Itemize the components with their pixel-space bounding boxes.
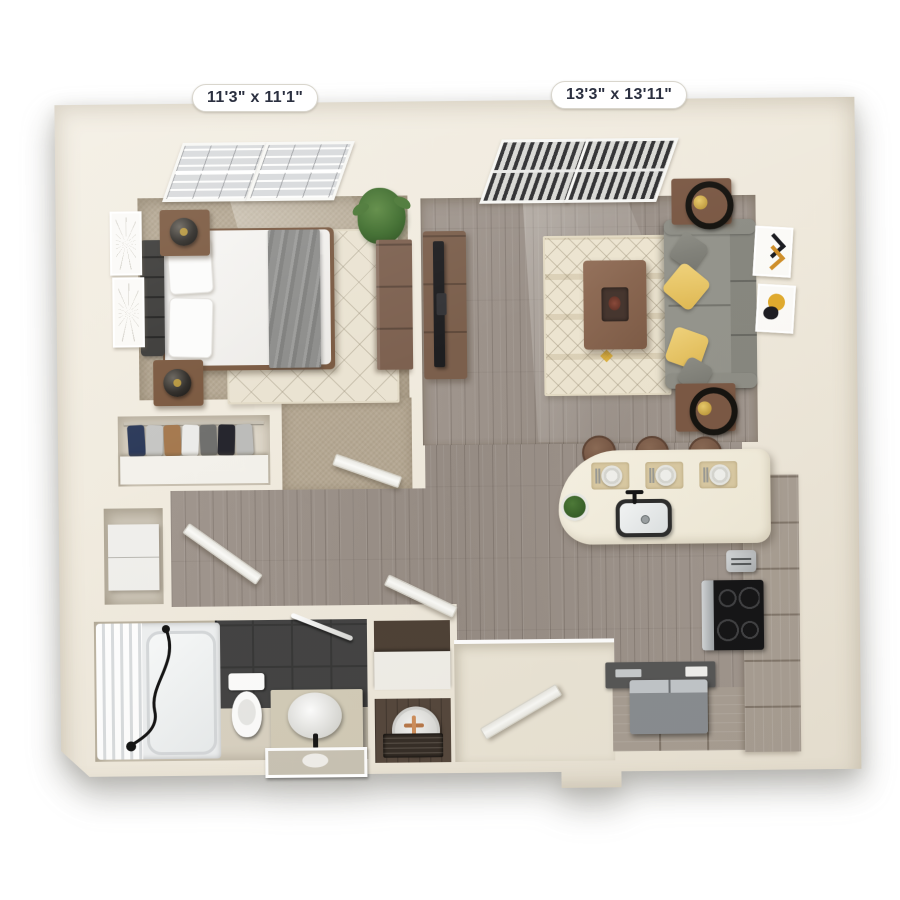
ring-lamp	[685, 181, 734, 230]
sofa-seat-seam	[669, 304, 731, 307]
bathroom-vanity	[271, 689, 364, 751]
kitchen-faucet	[632, 490, 636, 504]
place-setting	[645, 462, 683, 489]
hanging-garment	[181, 424, 199, 456]
utility-closet-cabinet	[108, 524, 160, 591]
toilet	[228, 673, 265, 739]
stove-burners	[715, 584, 760, 646]
sofa-back-cushions	[730, 219, 758, 388]
art-line-drawing	[118, 283, 139, 341]
bedroom-wall-art	[112, 277, 145, 347]
bedroom-dresser	[376, 239, 413, 369]
table-lamp	[170, 218, 198, 246]
toilet-tank	[228, 673, 264, 690]
living-room-wall-art	[753, 226, 794, 278]
toaster	[726, 550, 756, 572]
hanging-garment	[146, 425, 164, 456]
ring-lamp	[689, 387, 738, 436]
hanging-garment	[199, 424, 217, 456]
sink-drain	[641, 515, 650, 524]
bathtub	[96, 623, 221, 760]
hanging-garment	[163, 425, 181, 457]
end-table	[675, 383, 735, 432]
stove-control-panel	[701, 580, 714, 650]
nightstand	[160, 210, 210, 257]
nightstand	[153, 360, 203, 407]
linen-closet-shelf	[374, 651, 450, 690]
bed-throw-blanket	[268, 229, 321, 368]
bedroom-wall-art	[110, 211, 143, 275]
hanging-garment	[235, 424, 254, 456]
television	[433, 241, 445, 367]
art-line-drawing	[116, 217, 137, 269]
end-table	[671, 178, 731, 225]
rug-pattern-diamond	[600, 350, 613, 363]
shower-curtain	[96, 623, 143, 759]
hanging-garment	[127, 425, 146, 457]
hanging-garment	[218, 424, 236, 455]
kitchen-sink	[616, 499, 672, 538]
coffee-table	[583, 260, 647, 350]
table-lamp	[163, 369, 191, 397]
place-setting	[591, 462, 629, 489]
bed-pillow	[168, 297, 213, 358]
counter-plant	[564, 496, 586, 518]
place-setting	[699, 461, 737, 488]
closet-shelf	[120, 455, 268, 485]
bedroom-dimensions-label: 11'3" x 11'1"	[192, 84, 318, 112]
living-room-dimensions-label: 13'3" x 13'11"	[551, 81, 687, 109]
bathroom-mirror	[265, 747, 367, 778]
tub-basin	[146, 631, 217, 756]
living-room-wall-art	[755, 284, 796, 334]
refrigerator	[629, 679, 708, 734]
stove	[701, 580, 764, 651]
floor-vent-grate	[383, 733, 443, 758]
floor-plan	[54, 97, 861, 793]
coffee-table-tray	[601, 287, 628, 321]
bathroom-faucet	[313, 733, 318, 748]
toilet-bowl	[232, 691, 262, 737]
vessel-sink	[288, 692, 342, 739]
linen-closet	[374, 620, 451, 690]
potted-plant	[357, 188, 406, 244]
